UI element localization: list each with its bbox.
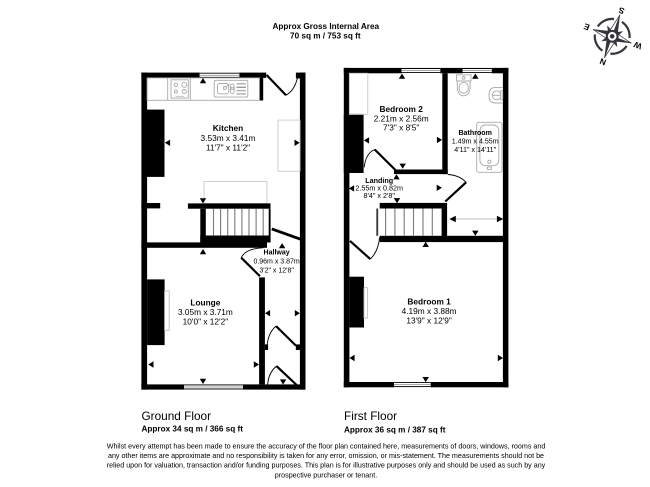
- svg-text:Kitchen: Kitchen: [213, 123, 243, 133]
- svg-text:70 sq m / 753 sq ft: 70 sq m / 753 sq ft: [290, 31, 361, 40]
- svg-text:Approx 36 sq m / 387 sq ft: Approx 36 sq m / 387 sq ft: [344, 426, 446, 435]
- svg-text:3.05m x 3.71m: 3.05m x 3.71m: [178, 307, 233, 317]
- svg-text:Hallway: Hallway: [264, 249, 290, 256]
- svg-text:Lounge: Lounge: [190, 298, 220, 308]
- svg-text:Bedroom 1: Bedroom 1: [407, 296, 451, 306]
- svg-text:any other items are approximat: any other items are approximate and no r…: [108, 452, 544, 460]
- svg-text:11'7" x 11'2": 11'7" x 11'2": [206, 142, 250, 152]
- svg-text:First Floor: First Floor: [344, 409, 397, 423]
- svg-text:1.49m x 4.55m: 1.49m x 4.55m: [452, 138, 499, 146]
- svg-text:13'9" x 12'9": 13'9" x 12'9": [406, 315, 452, 325]
- svg-text:Approx 34 sq m / 366 sq ft: Approx 34 sq m / 366 sq ft: [142, 424, 244, 433]
- svg-text:8'4" x 2'8": 8'4" x 2'8": [363, 191, 395, 200]
- svg-text:4.19m x 3.88m: 4.19m x 3.88m: [402, 306, 457, 316]
- svg-text:3'2" x 12'8": 3'2" x 12'8": [259, 267, 294, 274]
- svg-text:Approx Gross Internal Area: Approx Gross Internal Area: [272, 22, 379, 31]
- svg-text:relied upon for valuation, tra: relied upon for valuation, transaction a…: [107, 462, 546, 470]
- svg-text:Whilst every attempt has been: Whilst every attempt has been made to en…: [107, 442, 546, 450]
- svg-text:Ground Floor: Ground Floor: [142, 409, 212, 423]
- svg-text:3.53m x 3.41m: 3.53m x 3.41m: [201, 133, 256, 143]
- svg-text:Bathroom: Bathroom: [458, 129, 492, 137]
- svg-text:4'11" x 14'11": 4'11" x 14'11": [454, 146, 496, 154]
- svg-text:0.96m x 3.87m: 0.96m x 3.87m: [253, 258, 299, 265]
- svg-text:prospective purchaser or tenan: prospective purchaser or tenant.: [275, 471, 377, 479]
- svg-text:7'3" x 8'5": 7'3" x 8'5": [383, 123, 419, 133]
- svg-text:10'0" x 12'2": 10'0" x 12'2": [183, 317, 229, 327]
